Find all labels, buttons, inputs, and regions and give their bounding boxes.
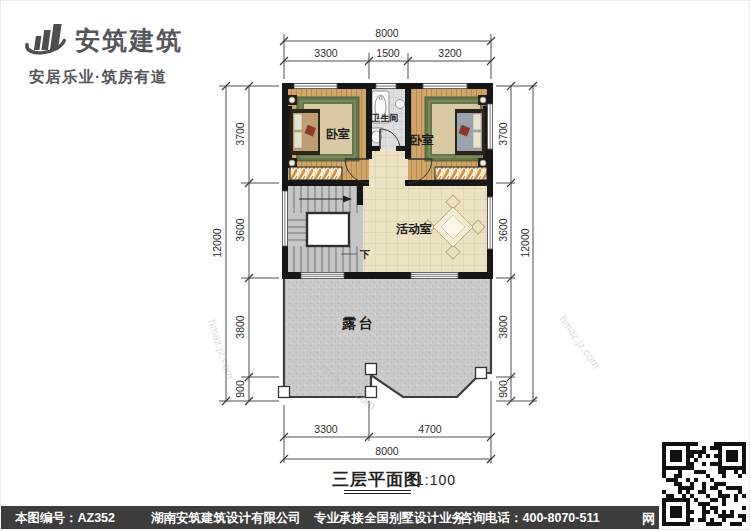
drawing-title: 三层平面图 1:100 [332, 470, 456, 494]
company-name: 湖南安筑建筑设计有限公司 [151, 510, 301, 527]
qr-code [659, 439, 749, 529]
svg-text:3700: 3700 [234, 122, 246, 146]
svg-text:3300: 3300 [314, 423, 338, 435]
drawing-number: 本图编号：AZ352 [15, 510, 115, 527]
svg-text:900: 900 [497, 380, 509, 398]
svg-text:3800: 3800 [497, 315, 509, 339]
svg-text:3600: 3600 [234, 218, 246, 242]
dim-bottom-total: 8000 [375, 445, 399, 457]
dim-right-total: 12000 [519, 228, 531, 257]
phone-number: 咨询电话：400-8070-511 [460, 510, 600, 527]
svg-text:3700: 3700 [497, 122, 509, 146]
svg-text:hmaz.jz.com: hmaz.jz.com [557, 313, 602, 370]
svg-text:3800: 3800 [234, 315, 246, 339]
svg-text:hmaz.jz.com: hmaz.jz.com [206, 318, 236, 380]
dim-top-total: 8000 [375, 27, 399, 39]
hall-floor [369, 149, 408, 186]
activity-room-label: 活动室 [395, 222, 432, 236]
title-scale: 1:100 [416, 472, 456, 488]
dim-left-total: 12000 [211, 228, 223, 257]
stair-down-label: 下 [359, 249, 370, 260]
svg-text:1500: 1500 [376, 47, 400, 59]
footer-bar: 本图编号：AZ352 湖南安筑建筑设计有限公司 专业承接全国别墅设计业务 咨询电… [1, 506, 749, 529]
svg-text:900: 900 [234, 380, 246, 398]
svg-text:3200: 3200 [438, 47, 462, 59]
drawing-sheet: 安筑建筑 安居乐业·筑房有道 [0, 0, 750, 530]
svg-text:4700: 4700 [418, 423, 442, 435]
bathroom-label: 卫生间 [371, 113, 399, 123]
svg-text:3300: 3300 [314, 47, 338, 59]
floor-plan-drawing: hmaz.jz.com hmaz.jz.com hmaz.jz.com hmaz… [1, 1, 750, 530]
service-text: 专业承接全国别墅设计业务 [314, 510, 464, 527]
svg-text:3600: 3600 [497, 218, 509, 242]
title-text: 三层平面图 [332, 470, 422, 489]
terrace-label: 露台 [341, 315, 376, 331]
terrace-area: hmaz.jz.com 露台 [279, 275, 492, 413]
web-label: 网 [642, 510, 655, 528]
bedroom-right-label: 卧室 [410, 133, 434, 147]
bedroom-left-label: 卧室 [326, 127, 350, 141]
